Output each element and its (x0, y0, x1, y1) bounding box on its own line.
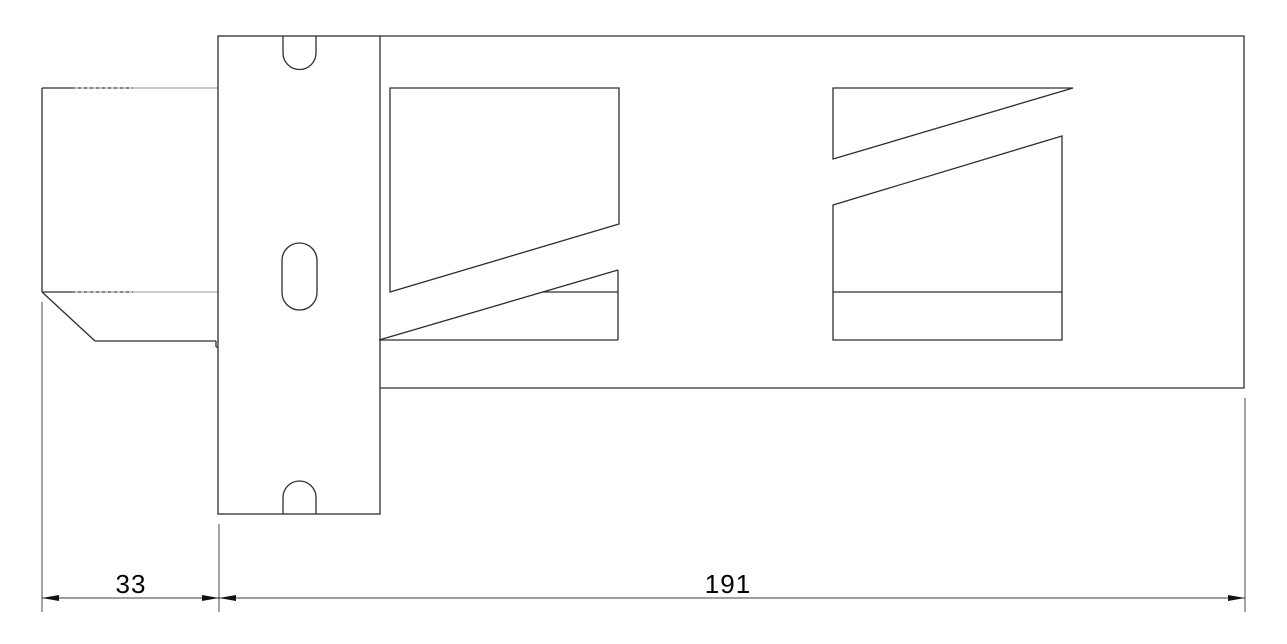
dimension-beam-length: 191 (219, 569, 1245, 601)
beam-body (380, 36, 1244, 388)
connector-plate-outline (218, 36, 380, 514)
plate-top-notch (283, 36, 316, 70)
left-section-chamfer (42, 292, 95, 341)
technical-drawing: 33 191 (0, 0, 1287, 644)
arrow-right-icon (202, 595, 219, 601)
cad-drawing-canvas: 33 191 (0, 0, 1287, 644)
left-profile-section (42, 88, 218, 347)
arrow-right-icon (1228, 595, 1245, 601)
cutout-left-diagonal (379, 270, 618, 340)
cutout-right-upper-triangle (833, 88, 1073, 159)
cutout-right-lower-panel (833, 136, 1062, 340)
dimension-value-33: 33 (116, 569, 147, 599)
cutout-left-upper-panel (390, 88, 619, 292)
dimension-value-191: 191 (705, 569, 751, 599)
arrow-left-icon (42, 595, 59, 601)
beam-cutout-right (833, 88, 1073, 340)
dimension-left-width: 33 (42, 569, 219, 601)
beam-outline (380, 36, 1244, 388)
plate-bottom-notch (283, 481, 316, 514)
dimensions: 33 191 (42, 302, 1245, 612)
plate-center-slot (282, 243, 317, 310)
left-section-bottom-edge (95, 341, 218, 347)
connector-plate (218, 36, 380, 514)
arrow-left-icon (219, 595, 236, 601)
beam-cutout-left (379, 88, 619, 340)
